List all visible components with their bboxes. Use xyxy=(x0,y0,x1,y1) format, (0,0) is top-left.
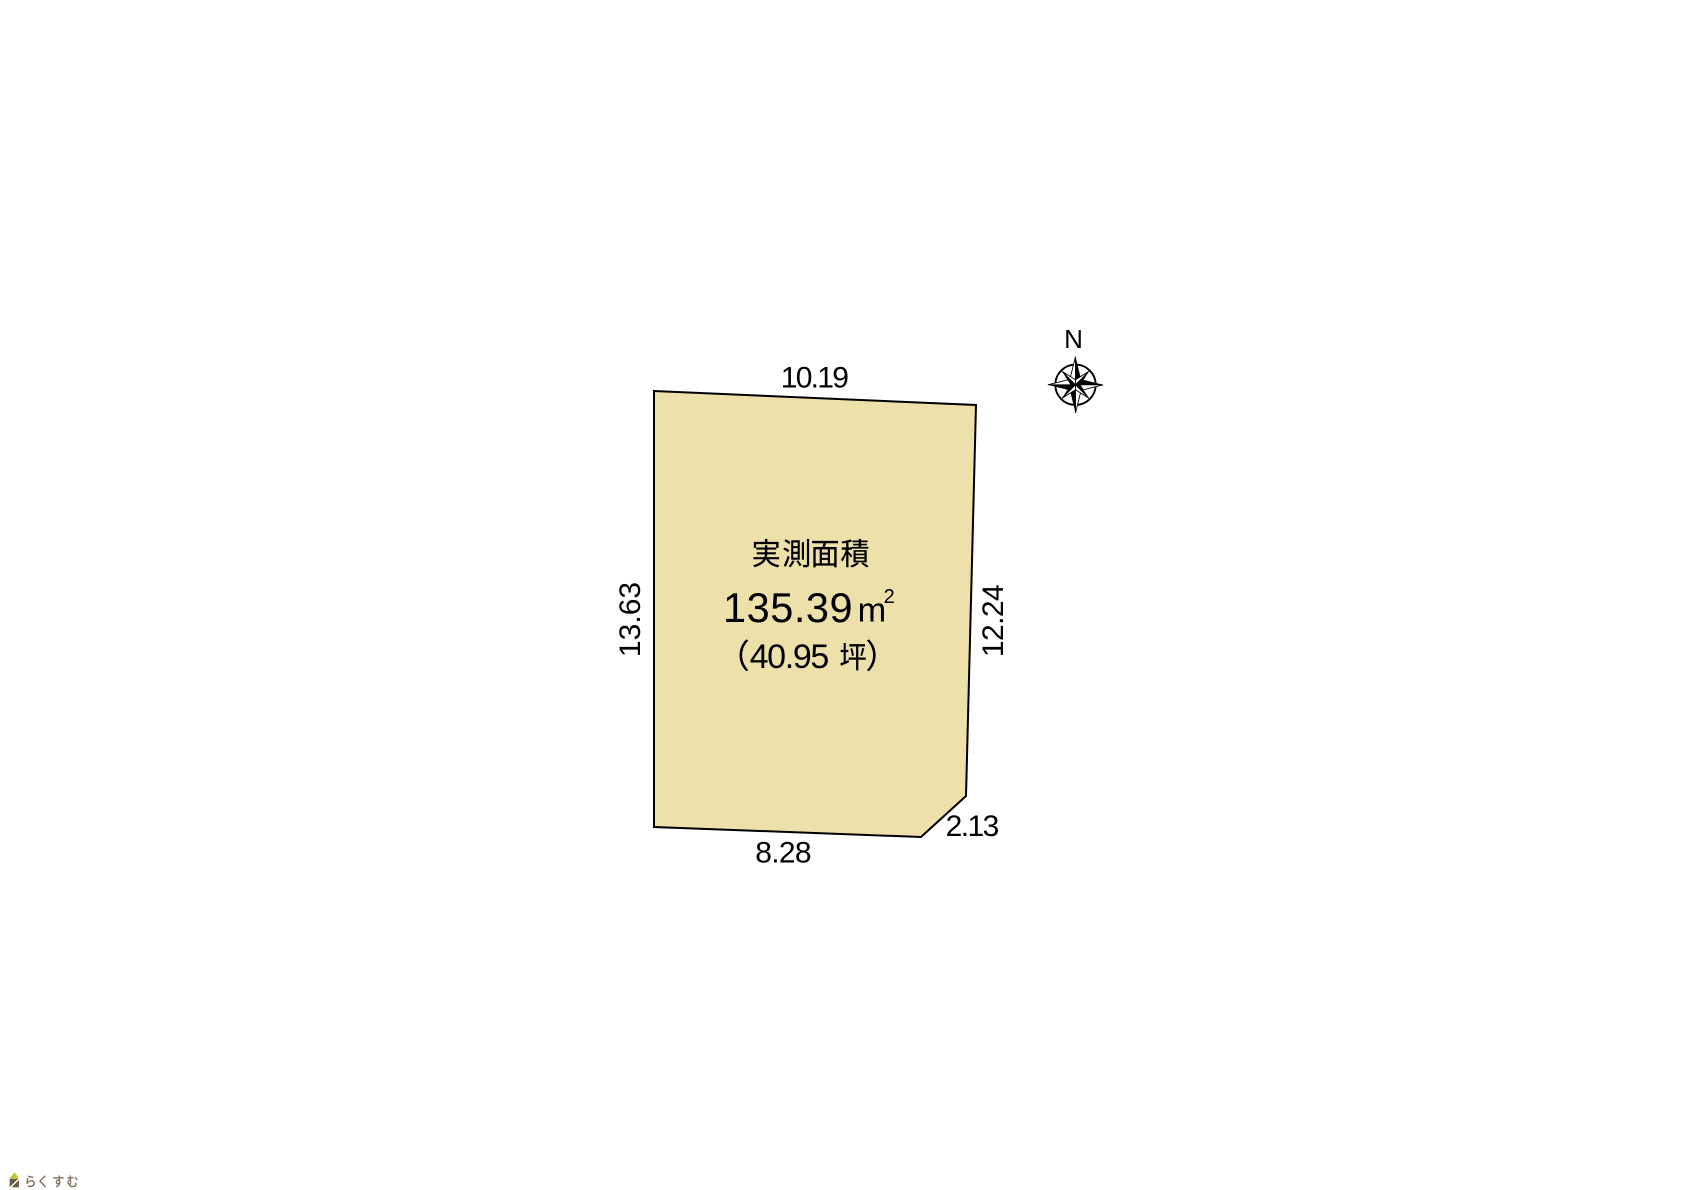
svg-text:40.95: 40.95 xyxy=(750,638,830,676)
svg-text:13.63: 13.63 xyxy=(614,582,647,657)
svg-text:2.13: 2.13 xyxy=(946,810,1000,843)
svg-text:N: N xyxy=(1064,324,1083,354)
svg-text:m: m xyxy=(858,591,887,629)
svg-text:135.39: 135.39 xyxy=(723,584,853,631)
svg-text:2: 2 xyxy=(884,586,895,608)
svg-text:10.19: 10.19 xyxy=(781,362,849,395)
svg-text:8.28: 8.28 xyxy=(755,836,811,869)
svg-text:12.24: 12.24 xyxy=(977,584,1010,657)
